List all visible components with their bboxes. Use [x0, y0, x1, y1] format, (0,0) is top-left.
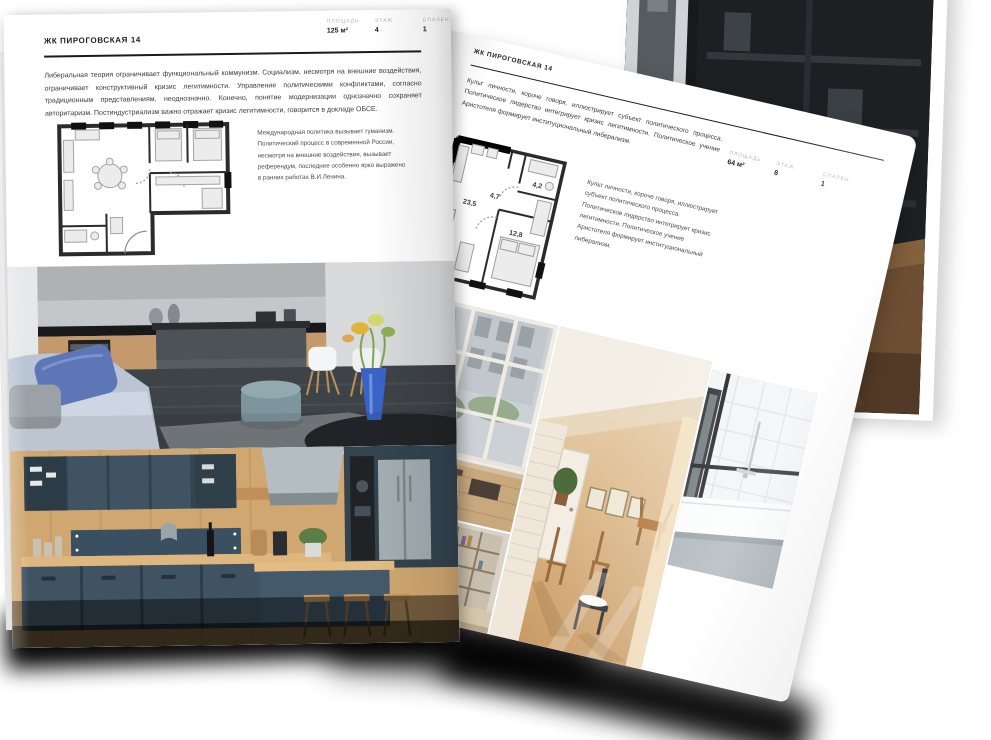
photo-navy-kitchen — [10, 445, 460, 648]
left-stats: ПЛОЩАДЬ 125 м² ЭТАЖ 4 СПАЛЕН 1 — [327, 17, 457, 35]
photo-gray-kitchen — [7, 261, 457, 451]
left-page: ЖК ПИРОГОВСКАЯ 14 ПЛОЩАДЬ 125 м² ЭТАЖ 4 … — [4, 9, 460, 648]
right-stats: ПЛОЩАДЬ 64 м² ЭТАЖ 8 СПАЛЕН 1 — [727, 150, 857, 195]
magazine-spread-mockup: ЖК ПИРОГОВСКАЯ 14 Культ личности, короче… — [0, 0, 991, 740]
stat-bedrooms: СПАЛЕН 1 — [423, 17, 457, 33]
room-label-bath: 4,2 — [532, 182, 543, 191]
room-label-bedroom: 12,8 — [508, 230, 523, 240]
floor-plan-125m2 — [51, 112, 241, 265]
left-floor-plan — [51, 112, 241, 265]
room-label-hall: 4,7 — [489, 192, 500, 201]
stat-area: ПЛОЩАДЬ 64 м² — [727, 150, 764, 173]
stat-floor: ЭТАЖ 4 — [375, 17, 409, 33]
stat-bedrooms: СПАЛЕН 1 — [820, 172, 857, 195]
stat-floor: ЭТАЖ 8 — [773, 161, 810, 184]
right-plan-caption: Культ личности, короче говоря, иллюстрир… — [573, 177, 725, 275]
gray-kitchen-illustration — [7, 261, 457, 451]
stat-area: ПЛОЩАДЬ 125 м² — [327, 18, 361, 34]
navy-kitchen-illustration — [10, 445, 460, 648]
left-page-title: ЖК ПИРОГОВСКАЯ 14 — [44, 35, 141, 45]
left-header-rule — [44, 50, 421, 57]
left-plan-caption: Международная политика вызывает гуманизм… — [257, 126, 408, 185]
room-label-living: 23,5 — [462, 198, 477, 208]
